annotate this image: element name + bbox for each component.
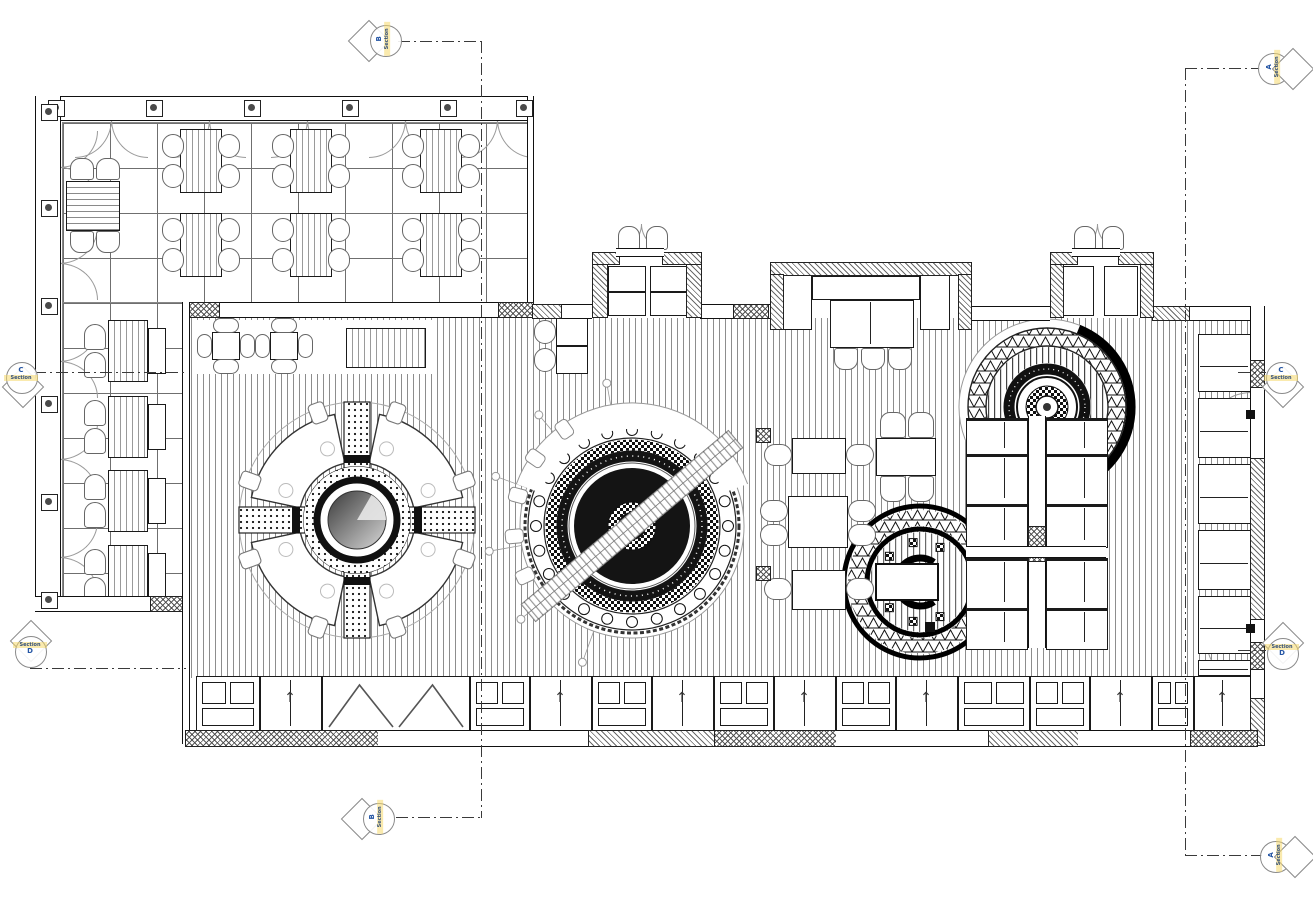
scallop <box>719 496 730 507</box>
spoke-node <box>517 615 525 623</box>
chair <box>218 218 240 242</box>
booth-divider <box>1200 563 1248 564</box>
bay1-booth-1 <box>608 266 646 292</box>
booth-seat <box>1046 608 1108 650</box>
section-marker-right-c: CSection <box>1258 354 1313 414</box>
chair <box>402 134 424 158</box>
module-seat <box>230 682 254 704</box>
chair <box>760 524 788 546</box>
column-dot <box>45 302 52 309</box>
column-dot <box>45 108 52 115</box>
door-stop-1 <box>1246 410 1255 419</box>
bay1-chair-2 <box>646 226 668 250</box>
chair <box>271 318 297 333</box>
chair <box>458 134 480 158</box>
booth-table <box>108 396 148 458</box>
bay2-wall-top <box>770 262 972 276</box>
spoke-node <box>578 658 586 666</box>
booth-chair <box>84 474 106 500</box>
right-wall-hatch2 <box>1250 458 1265 620</box>
spiral-table <box>876 564 938 600</box>
scallop <box>627 617 638 628</box>
module-seat <box>1036 708 1084 726</box>
section-marker-right-top: ASection <box>1256 40 1313 100</box>
booth-divider <box>1004 612 1005 642</box>
module-seat <box>598 708 646 726</box>
column-dot <box>520 104 527 111</box>
hall-top-wall-seg2-hatch <box>733 304 769 319</box>
rim-chair <box>505 529 524 545</box>
bottom-wall-segment <box>714 730 838 747</box>
chair <box>534 348 556 372</box>
mandala-medallion <box>482 376 782 676</box>
scallop <box>694 588 705 599</box>
booth-divider <box>1200 497 1248 498</box>
column-dot <box>346 104 353 111</box>
door-arrow: ↑ <box>1215 688 1229 708</box>
bay1-booth-2 <box>650 266 688 292</box>
arm <box>409 507 475 533</box>
section-marker-label: BSection <box>369 800 383 834</box>
column-dot <box>248 104 255 111</box>
module-seat <box>868 682 890 704</box>
module-seat <box>624 682 646 704</box>
dining-table <box>290 129 332 193</box>
terrace-top-wall <box>35 96 532 121</box>
section-line-a-top-connector <box>1185 68 1260 69</box>
booth-seat <box>1046 504 1108 548</box>
spoke-node <box>485 547 493 555</box>
chair <box>328 248 350 272</box>
chair <box>908 412 934 438</box>
bay3-chair-1 <box>1074 226 1096 250</box>
bay2-table-divider <box>870 302 871 344</box>
bay2-pilaster-right <box>920 274 950 330</box>
scallop <box>579 604 590 615</box>
booth-bench <box>148 478 166 524</box>
column-dot <box>45 596 52 603</box>
section-marker-label: ASection <box>1268 838 1282 872</box>
spoke-node <box>492 472 500 480</box>
column-dot <box>45 498 52 505</box>
booth-seat <box>1046 454 1108 506</box>
wall-booth <box>1198 660 1252 676</box>
scallop <box>675 604 686 615</box>
scallop <box>719 545 730 556</box>
chair <box>880 476 906 502</box>
column-dot <box>45 204 52 211</box>
chair <box>402 218 424 242</box>
booth-divider <box>1200 628 1248 629</box>
chair <box>272 164 294 188</box>
booth-bench <box>148 404 166 450</box>
chair <box>848 500 876 522</box>
booth-chair <box>84 324 106 350</box>
hall-left-wall <box>182 302 190 744</box>
terrace-right-wall <box>527 96 534 306</box>
bay1-chair-1 <box>618 226 640 250</box>
chair <box>328 164 350 188</box>
booth-divider <box>1004 562 1005 602</box>
booth-table <box>108 470 148 532</box>
module-seat <box>1062 682 1084 704</box>
door-arrow: ↑ <box>675 688 689 708</box>
bottom-wall-segment <box>1190 730 1258 747</box>
bay3-door-sill <box>1072 248 1120 257</box>
door-arrow: ↑ <box>919 688 933 708</box>
bay2-chair-3 <box>888 348 912 370</box>
chair <box>272 218 294 242</box>
scallop <box>534 496 545 507</box>
module-seat <box>202 682 226 704</box>
chair <box>458 218 480 242</box>
door-arrow: ↑ <box>797 688 811 708</box>
chair <box>218 248 240 272</box>
module-seat <box>1036 682 1058 704</box>
chair <box>218 134 240 158</box>
module-seat <box>964 708 1024 726</box>
scallop <box>534 545 545 556</box>
chair <box>458 248 480 272</box>
booth-chair <box>84 502 106 528</box>
chair <box>162 134 184 158</box>
wall-booth <box>1198 334 1252 392</box>
module-seat <box>720 682 742 704</box>
hall-top-wall-seg3 <box>970 306 1050 321</box>
floor-inlay <box>756 566 771 581</box>
booth-seat <box>966 558 1028 610</box>
booth-seat <box>966 418 1028 456</box>
dining-table <box>420 213 462 277</box>
terrace-hall-boundary-wall <box>182 302 532 318</box>
spoke-node <box>535 411 543 419</box>
chair <box>272 248 294 272</box>
booth-chair <box>84 428 106 454</box>
booth-seat <box>966 504 1028 548</box>
rim-chair <box>507 486 528 504</box>
chair <box>764 444 792 466</box>
bay3-booth-1 <box>1062 266 1094 316</box>
bottom-wall-segment <box>1078 730 1190 747</box>
bay2-chair-1 <box>834 348 858 370</box>
module-seat <box>598 682 620 704</box>
section-marker-label: ASection <box>1266 50 1280 84</box>
bay2-large-table <box>830 300 914 348</box>
chair <box>760 500 788 522</box>
chair <box>213 359 239 374</box>
cafe-table <box>212 332 240 360</box>
module-seat <box>964 682 992 704</box>
bay2-wall-right <box>958 274 972 330</box>
chair <box>197 334 212 358</box>
column-dot <box>150 104 157 111</box>
scallop <box>531 521 542 532</box>
section-line-a-vertical <box>1185 68 1186 855</box>
scallop <box>602 613 613 624</box>
chair <box>846 578 874 600</box>
bay2-chair-2 <box>861 348 885 370</box>
door-arrow: ↑ <box>553 688 567 708</box>
chair <box>328 134 350 158</box>
module-seat <box>720 708 768 726</box>
booth-table <box>556 346 588 374</box>
module-seat <box>476 682 498 704</box>
pattern-square <box>936 543 944 551</box>
bay2-bench <box>812 276 920 300</box>
module-seat <box>476 708 524 726</box>
arm <box>239 507 305 533</box>
pattern-square <box>909 539 917 547</box>
chair <box>70 231 94 253</box>
chair <box>402 164 424 188</box>
booth-chair <box>84 400 106 426</box>
pattern-square <box>885 552 893 560</box>
chair <box>240 334 255 358</box>
chair <box>846 444 874 466</box>
wall-booth <box>1198 398 1252 458</box>
service-box <box>925 622 935 632</box>
dining-table <box>876 438 936 476</box>
section-marker-label: SectionD <box>1265 644 1299 658</box>
chair <box>272 134 294 158</box>
booth-back-band <box>966 546 1106 558</box>
wall-booth <box>1198 596 1252 654</box>
module-seat <box>842 708 890 726</box>
bay1-booth-3 <box>608 292 646 316</box>
column-dot <box>444 104 451 111</box>
cafe-table <box>270 332 298 360</box>
pattern-square <box>936 613 944 621</box>
section-line-b-bottom-connector <box>396 817 482 818</box>
booth-chair <box>84 352 106 378</box>
chair <box>162 218 184 242</box>
chair <box>764 578 792 600</box>
bay3-wall-top-r <box>1118 252 1154 265</box>
bay2-wall-left <box>770 274 784 330</box>
long-table <box>346 328 426 368</box>
booth-bench <box>148 553 166 599</box>
booth-divider <box>1084 612 1085 642</box>
bottom-wall-segment <box>988 730 1080 747</box>
booth-divider <box>1084 422 1085 448</box>
booth-seat <box>966 454 1028 506</box>
bottom-wall-segment <box>185 730 380 747</box>
booth-divider <box>1200 366 1248 367</box>
arm <box>344 402 370 468</box>
chair <box>908 476 934 502</box>
booth-divider <box>1084 562 1085 602</box>
bay1-door-sill <box>616 248 664 257</box>
booth-divider <box>1004 422 1005 448</box>
bay1-wall-top-r <box>662 252 702 265</box>
module-seat <box>842 682 864 704</box>
chair <box>458 164 480 188</box>
scallop <box>710 569 721 580</box>
dining-table <box>792 570 846 610</box>
dining-table <box>788 496 848 548</box>
arm <box>344 572 370 638</box>
bay1-booth-4 <box>650 292 688 316</box>
dining-table <box>792 438 846 474</box>
dining-table <box>420 129 462 193</box>
section-marker-left-d: SectionD <box>8 620 68 680</box>
floor-plan-sheet: BSection BSection ASection ASection CSec… <box>0 0 1313 897</box>
section-marker-left-c: CSection <box>2 356 62 416</box>
chair <box>880 412 906 438</box>
booth-divider <box>1084 458 1085 498</box>
bottom-wall-segment <box>588 730 716 747</box>
section-marker-label: CSection <box>4 367 38 381</box>
wall-booth <box>1198 464 1252 524</box>
door-stop-2 <box>1246 624 1255 633</box>
wall-booth <box>1198 530 1252 590</box>
hall-top-wall-seg1-hatch <box>532 304 562 319</box>
section-marker-label: CSection <box>1264 367 1298 381</box>
terrace-left-wall <box>35 96 61 610</box>
dining-table <box>180 213 222 277</box>
chair <box>848 524 876 546</box>
chair <box>402 248 424 272</box>
chair <box>70 158 94 180</box>
booth-divider <box>1004 458 1005 498</box>
bottom-wall-segment <box>836 730 988 747</box>
booth-divider <box>1200 431 1248 432</box>
chair <box>298 334 313 358</box>
dining-table <box>290 213 332 277</box>
booth-seat <box>1046 558 1108 610</box>
door-arrow: ↑ <box>283 688 297 708</box>
module-seat <box>996 682 1024 704</box>
bay3-booth-2 <box>1104 266 1138 316</box>
bay2-pilaster-left <box>782 274 812 330</box>
section-line-a-bottom-connector <box>1185 855 1262 856</box>
booth-seat <box>1046 418 1108 456</box>
booth-divider <box>1200 669 1248 670</box>
module-seat <box>746 682 768 704</box>
module-seat <box>1158 682 1171 704</box>
booth-table <box>556 318 588 346</box>
chair <box>255 334 270 358</box>
scallop <box>651 613 662 624</box>
chair <box>96 231 120 253</box>
section-marker-label: BSection <box>376 22 390 56</box>
round-booth-medallion <box>232 395 482 645</box>
door-arrow: ↑ <box>1113 688 1127 708</box>
dining-table <box>180 129 222 193</box>
floor-inlay <box>756 428 771 443</box>
module-seat <box>502 682 524 704</box>
booth-bench <box>148 328 166 374</box>
chair <box>213 318 239 333</box>
spoke-node <box>603 379 611 387</box>
chair <box>96 158 120 180</box>
section-line-b-vertical <box>481 41 482 818</box>
buffet-table <box>66 181 120 231</box>
chair <box>271 359 297 374</box>
bottom-wall-segment <box>378 730 588 747</box>
scallop <box>723 521 734 532</box>
booth-seat <box>966 608 1028 650</box>
section-marker-top: BSection <box>352 12 412 72</box>
chair <box>162 164 184 188</box>
chair <box>328 218 350 242</box>
bay3-chair-2 <box>1102 226 1124 250</box>
module-seat <box>1175 682 1188 704</box>
section-marker-right-bottom: ASection <box>1258 827 1313 887</box>
booth-divider <box>1004 508 1005 540</box>
pattern-square <box>909 617 917 625</box>
module-seat <box>1158 708 1188 726</box>
chair <box>534 320 556 344</box>
boundary-hatch-right <box>498 302 534 318</box>
booth-chair <box>84 549 106 575</box>
chair <box>162 248 184 272</box>
chair <box>218 164 240 188</box>
section-marker-right-d: SectionD <box>1258 622 1313 682</box>
section-marker-label: SectionD <box>13 642 47 656</box>
section-marker-bottom: BSection <box>345 788 405 848</box>
module-seat <box>202 708 254 726</box>
double-door-bay <box>322 676 470 731</box>
booth-divider <box>1084 508 1085 540</box>
pattern-square <box>885 604 893 612</box>
